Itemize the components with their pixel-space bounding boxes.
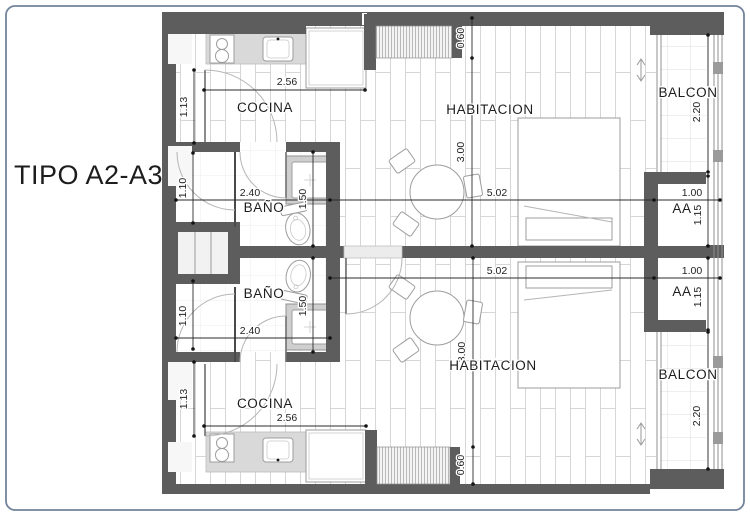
habitacion-label: HABITACION xyxy=(449,358,537,373)
dim-closet-depth: 0.60 xyxy=(455,455,467,476)
stove-symbol xyxy=(210,35,234,63)
dim-room-depth: 3.00 xyxy=(455,142,467,163)
bath-side-wall xyxy=(326,258,340,362)
dim-aa-width: 1.00 xyxy=(682,187,703,199)
balcon-label: BALCON xyxy=(658,367,717,382)
dim-kitchen-door: 1.13 xyxy=(178,97,190,118)
dim-aa-depth: 1.15 xyxy=(692,205,704,226)
wall-niche xyxy=(168,34,192,64)
cocina-label: COCINA xyxy=(237,100,293,115)
dim-room-width: 5.02 xyxy=(487,265,508,277)
dim-kitchen-door: 1.13 xyxy=(178,389,190,410)
door-lintel xyxy=(344,246,402,258)
bano-label: BAÑO xyxy=(244,286,285,301)
sink-symbol xyxy=(263,438,293,462)
dim-bath-width: 2.40 xyxy=(240,187,261,199)
bath-wall xyxy=(162,352,240,362)
habitacion-label: HABITACION xyxy=(446,102,534,117)
dim-balcony-depth: 2.20 xyxy=(691,406,703,427)
closet-lower xyxy=(377,447,450,484)
sink-symbol xyxy=(263,37,293,61)
bano-label: BAÑO xyxy=(244,200,285,215)
dim-balcony-depth: 2.20 xyxy=(691,102,703,123)
chair-symbol xyxy=(463,174,483,198)
entry-wall-stub xyxy=(364,14,376,70)
wall-niche xyxy=(168,442,192,472)
entry-wall-stub xyxy=(365,430,377,484)
duct-shaft xyxy=(162,222,240,284)
stove-symbol xyxy=(210,434,234,462)
floor-plan: TIPO A2-A3 xyxy=(0,0,750,518)
dim-aa-depth: 1.15 xyxy=(692,287,704,308)
closet-upper xyxy=(376,26,452,58)
bath-side-wall xyxy=(326,142,340,246)
exterior-wall-bottom xyxy=(162,484,650,494)
party-wall xyxy=(402,246,724,258)
cocina-label: COCINA xyxy=(237,396,293,411)
dim-bath-width: 2.40 xyxy=(240,325,261,337)
dim-counter-width: 2.56 xyxy=(277,76,298,88)
fridge-symbol xyxy=(306,28,366,88)
balcony-wall-bottom xyxy=(650,469,724,489)
balcony-wall-top xyxy=(650,12,724,35)
dim-counter-width: 2.56 xyxy=(277,412,298,424)
dim-aa-width: 1.00 xyxy=(682,265,703,277)
dim-closet-depth: 0.60 xyxy=(455,28,467,49)
aa-label: AA xyxy=(672,284,691,299)
plan-title: TIPO A2-A3 xyxy=(14,160,163,190)
dim-shower-width: 1.10 xyxy=(177,306,189,327)
dim-bath-depth: 1.50 xyxy=(297,189,309,210)
bed-symbol xyxy=(518,118,620,246)
balcony-floor-lower xyxy=(660,332,706,469)
dim-bath-depth: 1.50 xyxy=(297,296,309,317)
aa-label: AA xyxy=(672,201,691,216)
kitchen-header-wall xyxy=(176,12,306,34)
dim-room-width: 5.02 xyxy=(487,187,508,199)
fridge-symbol xyxy=(306,430,366,482)
dim-shower-width: 1.10 xyxy=(177,178,189,199)
balcon-label: BALCON xyxy=(658,85,717,100)
